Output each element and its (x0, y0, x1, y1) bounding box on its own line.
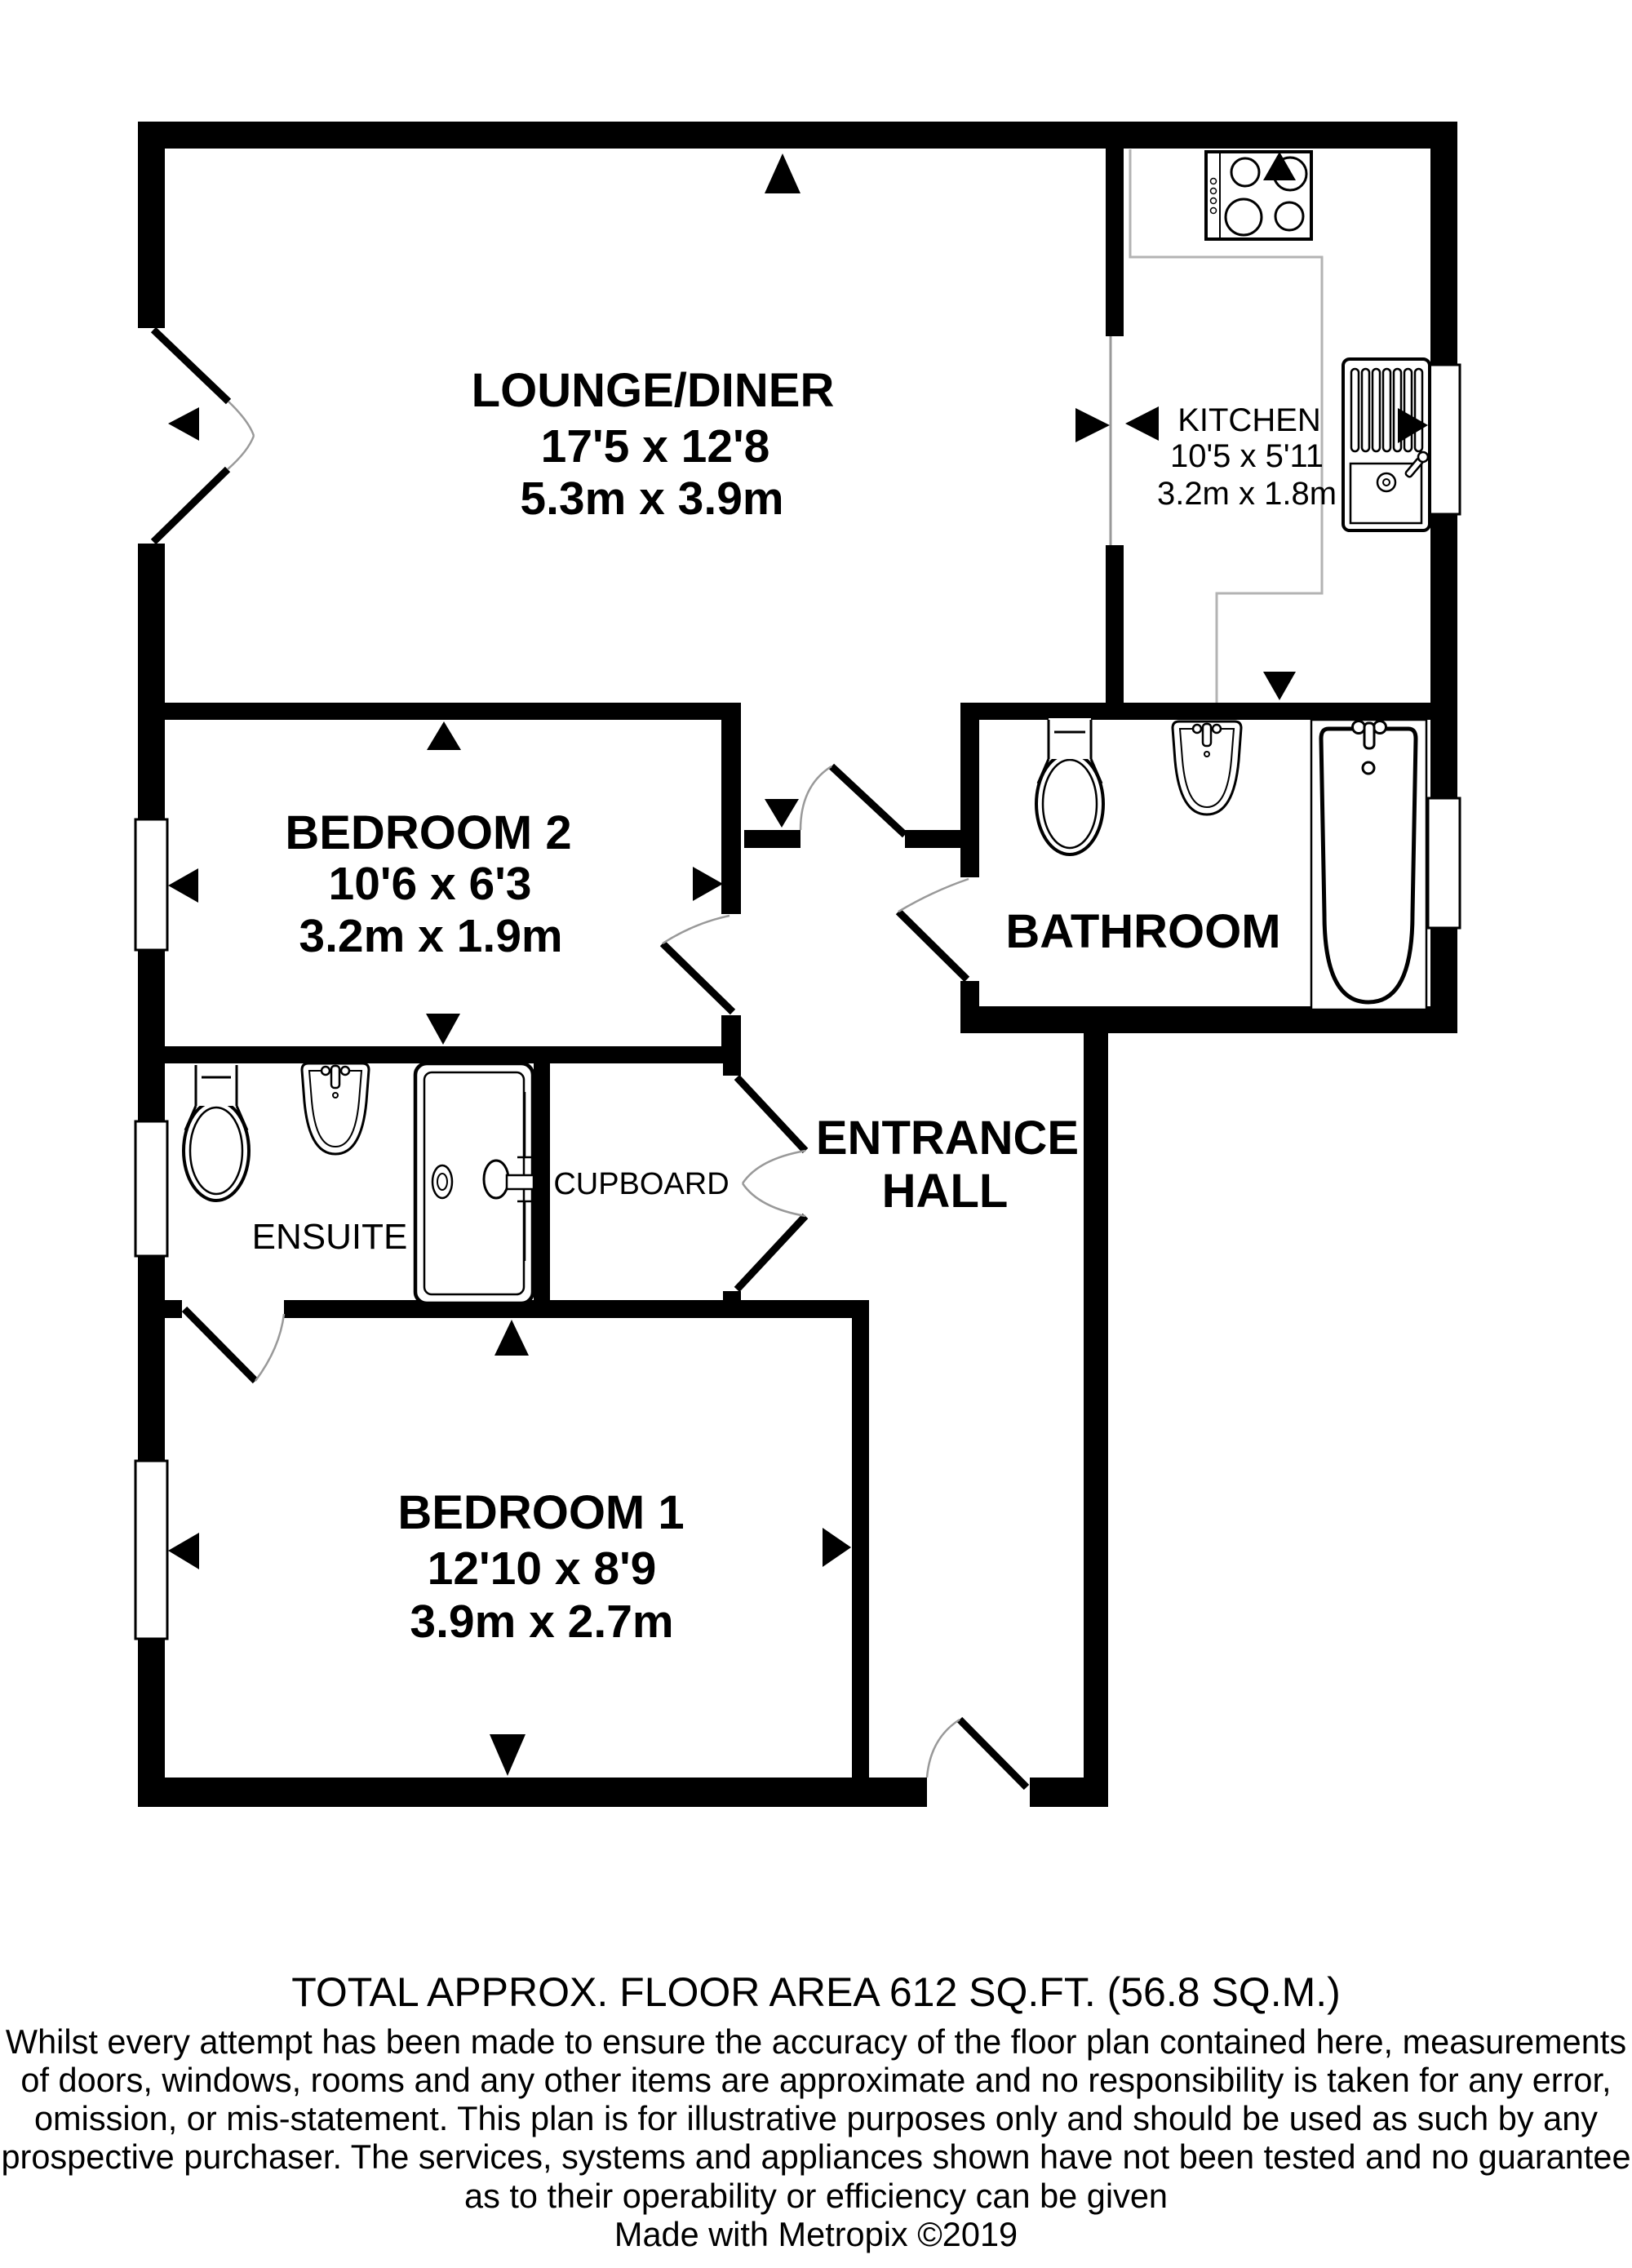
svg-text:5.3m x 3.9m: 5.3m x 3.9m (520, 473, 783, 525)
svg-text:CUPBOARD: CUPBOARD (553, 1167, 729, 1201)
svg-text:BEDROOM 2: BEDROOM 2 (285, 806, 571, 859)
svg-text:Whilst every attempt has been: Whilst every attempt has been made to en… (6, 2022, 1626, 2061)
svg-text:as to their operability or eff: as to their operability or efficiency ca… (464, 2177, 1168, 2215)
svg-text:LOUNGE/DINER: LOUNGE/DINER (472, 364, 835, 417)
svg-text:prospective purchaser. The ser: prospective purchaser. The services, sys… (1, 2137, 1630, 2176)
svg-text:HALL: HALL (882, 1165, 1009, 1218)
svg-text:12'10 x 8'9: 12'10 x 8'9 (428, 1542, 657, 1595)
svg-text:TOTAL APPROX. FLOOR AREA 612 S: TOTAL APPROX. FLOOR AREA 612 SQ.FT. (56.… (291, 1969, 1341, 2015)
svg-text:KITCHEN: KITCHEN (1177, 402, 1321, 438)
svg-text:3.2m x 1.8m: 3.2m x 1.8m (1157, 476, 1337, 512)
svg-text:10'6 x 6'3: 10'6 x 6'3 (329, 858, 532, 910)
svg-text:BEDROOM 1: BEDROOM 1 (397, 1486, 684, 1539)
svg-text:omission, or mis-statement. Th: omission, or mis-statement. This plan is… (34, 2099, 1598, 2137)
svg-text:Made with Metropix ©2019: Made with Metropix ©2019 (614, 2215, 1018, 2253)
svg-text:10'5 x 5'11: 10'5 x 5'11 (1170, 438, 1324, 474)
svg-text:3.2m x 1.9m: 3.2m x 1.9m (299, 910, 562, 962)
svg-text:of doors, windows, rooms and a: of doors, windows, rooms and any other i… (20, 2061, 1611, 2099)
svg-text:ENTRANCE: ENTRANCE (816, 1112, 1079, 1165)
svg-text:17'5 x 12'8: 17'5 x 12'8 (541, 420, 770, 473)
svg-text:BATHROOM: BATHROOM (1005, 905, 1280, 958)
svg-text:ENSUITE: ENSUITE (252, 1217, 408, 1257)
svg-text:3.9m x 2.7m: 3.9m x 2.7m (410, 1596, 673, 1648)
